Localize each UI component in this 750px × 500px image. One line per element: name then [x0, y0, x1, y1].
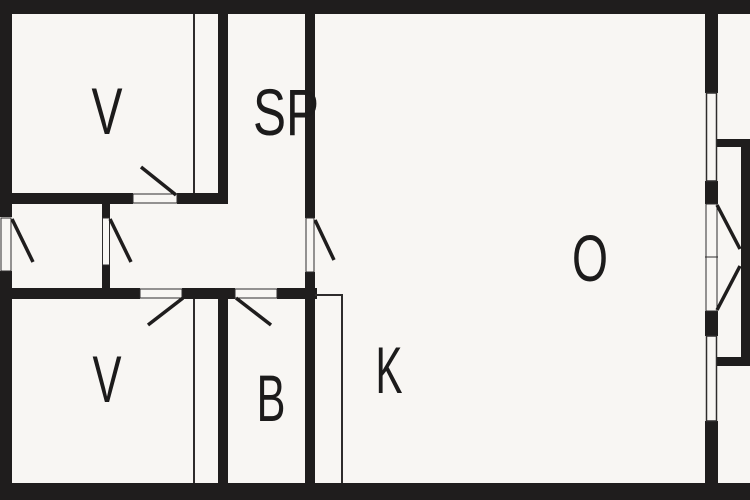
floor-plan-drawing: V SP O V B K [0, 0, 750, 500]
room-label-living: O [572, 221, 608, 295]
door-opening-vestibule [103, 218, 110, 265]
floor-plan: V SP O V B K [0, 0, 750, 500]
door-opening-bedroom-bottom [140, 289, 182, 298]
door-swing-living [315, 220, 334, 260]
room-label-sp: SP [253, 75, 319, 149]
door-swing-entrance [12, 219, 33, 262]
door-opening-living [306, 218, 314, 272]
balcony-edge-right [741, 139, 750, 366]
room-label-kitchen: K [376, 333, 403, 407]
wall-bathroom-living [305, 272, 315, 483]
room-label-bedroom-top: V [92, 74, 123, 148]
outer-wall-right-segment-2 [705, 181, 718, 204]
wall-bedroom-bottom-bathroom [218, 299, 228, 483]
vestibule-wall-lower [102, 265, 110, 288]
door-swing-bedroom-top [141, 167, 176, 195]
door-opening-entrance [1, 218, 11, 271]
vestibule-wall-stub [102, 204, 110, 218]
door-opening-bedroom-top [133, 194, 177, 203]
window-upper [707, 93, 717, 181]
door-opening-bathroom [235, 289, 277, 298]
outer-wall-left-upper [0, 0, 12, 217]
wall-bedroom-top-sp [218, 14, 228, 204]
window-lower [707, 336, 717, 421]
door-swing-bathroom [236, 298, 271, 325]
kitchen-outline [315, 295, 342, 483]
outer-wall-right-segment-3 [705, 311, 718, 336]
door-swing-bedroom-bottom [148, 298, 183, 325]
door-swing-vestibule [110, 219, 131, 262]
hallway-bottom-wall-left [12, 288, 140, 299]
outer-wall-right-segment-1 [705, 0, 718, 93]
hallway-bottom-wall-middle [182, 288, 235, 299]
outer-wall-bottom [0, 483, 750, 500]
hallway-top-wall-left [12, 193, 133, 204]
outer-wall-top [0, 0, 750, 14]
outer-wall-right-segment-4 [705, 421, 718, 500]
room-label-bedroom-bottom: V [93, 342, 122, 416]
outer-wall-left-lower [0, 271, 12, 500]
room-label-bathroom: B [257, 361, 286, 435]
door-swing-balcony-upper [717, 205, 740, 249]
door-swing-balcony-lower [717, 266, 740, 310]
